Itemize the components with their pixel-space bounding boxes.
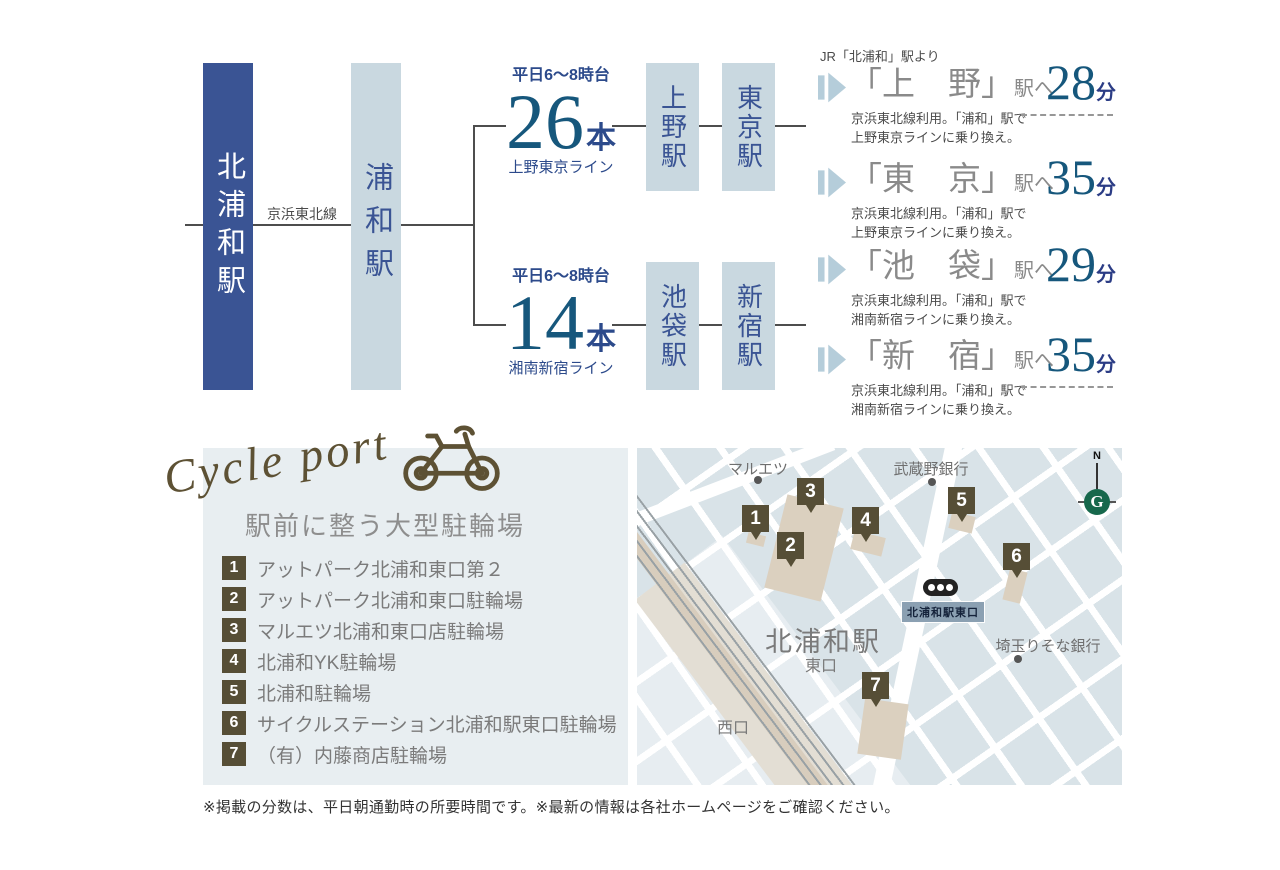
compass-logo: G xyxy=(1084,489,1110,515)
station-box-ikebukuro: 池袋駅 xyxy=(646,262,699,390)
access-header: JR「北浦和」駅より xyxy=(820,46,940,65)
map-east-exit-label: 東口 xyxy=(791,652,851,676)
cycle-port-panel: Cycle port 駅前に整う大型駐輪場 1 アットパーク北浦和東口第２ 2 … xyxy=(203,448,628,785)
train-count: 26 本 xyxy=(475,86,647,158)
page: 北浦和駅 京浜東北線 浦和駅 平日6〜8時台 26 本 上野東京ライン 平日6〜… xyxy=(0,0,1280,870)
map-marker-6: 6 xyxy=(1003,543,1030,570)
access-minutes-unit: 分 xyxy=(1096,177,1116,199)
item-label: アットパーク北浦和東口第２ xyxy=(257,555,504,582)
branch-line xyxy=(699,324,722,326)
compass-needle xyxy=(1096,463,1098,489)
access-note-line2: 上野東京ラインに乗り換え。 xyxy=(851,225,1020,240)
item-number-badge: 7 xyxy=(222,742,246,766)
access-station-name: 「上 野」 xyxy=(849,67,1014,103)
branch-line xyxy=(774,125,806,127)
dashed-separator xyxy=(1021,114,1113,116)
map-marker-5: 5 xyxy=(948,487,975,514)
station-box-ueno: 上野駅 xyxy=(646,63,699,191)
via-station-box: 浦和駅 xyxy=(351,63,401,390)
access-minutes: 28 xyxy=(1046,54,1096,110)
item-number-badge: 6 xyxy=(222,711,246,735)
poi-dot xyxy=(1014,655,1022,663)
train-count-number: 26 xyxy=(506,86,584,158)
arrow-right-icon xyxy=(818,167,846,198)
access-note-line1: 京浜東北線利用。「浦和」駅で xyxy=(851,111,1027,126)
train-count-number: 14 xyxy=(506,287,584,359)
access-minutes-unit: 分 xyxy=(1096,82,1116,104)
branch-line xyxy=(699,125,722,127)
branch-top: 平日6〜8時台 26 本 上野東京ライン xyxy=(475,66,647,177)
bicycle-icon xyxy=(399,422,504,494)
cycle-port-script-title: Cycle port xyxy=(160,417,393,506)
route-line xyxy=(401,224,475,226)
branch-line xyxy=(774,324,806,326)
access-row-tokyo: 「東 京」駅へ 35分 京浜東北線利用。「浦和」駅で上野東京ラインに乗り換え。 xyxy=(818,161,1116,239)
access-row-ueno: 「上 野」駅へ 28分 京浜東北線利用。「浦和」駅で上野東京ラインに乗り換え。 xyxy=(818,66,1116,144)
item-label: マルエツ北浦和東口店駐輪場 xyxy=(257,617,504,644)
line-label: 京浜東北線 xyxy=(256,204,348,224)
access-minutes-unit: 分 xyxy=(1096,264,1116,286)
bus-rotary-icon xyxy=(923,579,958,596)
poi-label-saitama-resona-bank: 埼玉りそな銀行 xyxy=(983,635,1113,656)
map-marker-7: 7 xyxy=(862,672,889,699)
item-number-badge: 1 xyxy=(222,556,246,580)
poi-label-musashino-bank: 武蔵野銀行 xyxy=(866,458,996,479)
access-minutes: 35 xyxy=(1046,149,1096,205)
access-note-line2: 上野東京ラインに乗り換え。 xyxy=(851,130,1020,145)
branch-line-name: 湘南新宿ライン xyxy=(475,360,647,378)
item-number-badge: 2 xyxy=(222,587,246,611)
footer-note: ※掲載の分数は、平日朝通勤時の所要時間です。※最新の情報は各社ホームページをご確… xyxy=(203,796,900,817)
area-map: マルエツ 武蔵野銀行 埼玉りそな銀行 1 2 3 4 5 6 7 北浦和駅東口 … xyxy=(637,448,1122,785)
list-item: 4 北浦和YK駐輪場 xyxy=(222,649,617,673)
compass-north-label: N xyxy=(1073,450,1121,462)
poi-dot xyxy=(754,476,762,484)
access-note-line1: 京浜東北線利用。「浦和」駅で xyxy=(851,383,1027,398)
item-label: サイクルステーション北浦和駅東口駐輪場 xyxy=(257,710,617,737)
item-number-badge: 5 xyxy=(222,680,246,704)
route-line xyxy=(185,224,203,226)
arrow-right-icon xyxy=(818,254,846,285)
item-label: アットパーク北浦和東口駐輪場 xyxy=(257,586,523,613)
map-building xyxy=(857,698,908,760)
list-item: 2 アットパーク北浦和東口駐輪場 xyxy=(222,587,617,611)
access-row-ikebukuro: 「池 袋」駅へ 29分 京浜東北線利用。「浦和」駅で湘南新宿ラインに乗り換え。 xyxy=(818,248,1116,326)
station-box-shinjuku: 新宿駅 xyxy=(722,262,775,390)
bus-stop-chip: 北浦和駅東口 xyxy=(901,601,985,623)
branch-bottom: 平日6〜8時台 14 本 湘南新宿ライン xyxy=(475,267,647,378)
item-number-badge: 3 xyxy=(222,618,246,642)
arrow-right-icon xyxy=(818,344,846,375)
origin-station-box: 北浦和駅 xyxy=(203,63,253,390)
train-count-unit: 本 xyxy=(586,325,616,355)
access-station-name: 「池 袋」 xyxy=(849,249,1014,285)
item-number-badge: 4 xyxy=(222,649,246,673)
access-station-name: 「新 宿」 xyxy=(849,339,1014,375)
station-box-tokyo: 東京駅 xyxy=(722,63,775,191)
access-minutes-unit: 分 xyxy=(1096,354,1116,376)
item-label: （有）内藤商店駐輪場 xyxy=(257,741,447,768)
map-marker-4: 4 xyxy=(852,507,879,534)
list-item: 6 サイクルステーション北浦和駅東口駐輪場 xyxy=(222,711,617,735)
access-minutes: 29 xyxy=(1046,236,1096,292)
route-line xyxy=(253,224,351,226)
train-count: 14 本 xyxy=(475,287,647,359)
list-item: 7 （有）内藤商店駐輪場 xyxy=(222,742,617,766)
dashed-separator xyxy=(1021,386,1113,388)
access-note-line2: 湘南新宿ラインに乗り換え。 xyxy=(851,402,1020,417)
cycle-port-list: 1 アットパーク北浦和東口第２ 2 アットパーク北浦和東口駐輪場 3 マルエツ北… xyxy=(222,556,617,773)
map-marker-1: 1 xyxy=(742,505,769,532)
access-note-line1: 京浜東北線利用。「浦和」駅で xyxy=(851,293,1027,308)
train-count-unit: 本 xyxy=(586,124,616,154)
list-item: 1 アットパーク北浦和東口第２ xyxy=(222,556,617,580)
access-minutes: 35 xyxy=(1046,326,1096,382)
branch-line-name: 上野東京ライン xyxy=(475,159,647,177)
item-label: 北浦和駐輪場 xyxy=(257,679,371,706)
access-station-name: 「東 京」 xyxy=(849,162,1014,198)
access-note-line1: 京浜東北線利用。「浦和」駅で xyxy=(851,206,1027,221)
compass: N G xyxy=(1073,450,1121,522)
poi-dot xyxy=(928,478,936,486)
list-item: 3 マルエツ北浦和東口店駐輪場 xyxy=(222,618,617,642)
access-row-shinjuku: 「新 宿」駅へ 35分 京浜東北線利用。「浦和」駅で湘南新宿ラインに乗り換え。 xyxy=(818,338,1116,416)
cycle-port-subtitle: 駅前に整う大型駐輪場 xyxy=(245,506,525,543)
item-label: 北浦和YK駐輪場 xyxy=(257,648,396,675)
map-marker-3: 3 xyxy=(797,478,824,505)
access-note-line2: 湘南新宿ラインに乗り換え。 xyxy=(851,312,1020,327)
list-item: 5 北浦和駐輪場 xyxy=(222,680,617,704)
arrow-right-icon xyxy=(818,72,846,103)
map-west-exit-label: 西口 xyxy=(703,714,763,738)
map-marker-2: 2 xyxy=(777,532,804,559)
